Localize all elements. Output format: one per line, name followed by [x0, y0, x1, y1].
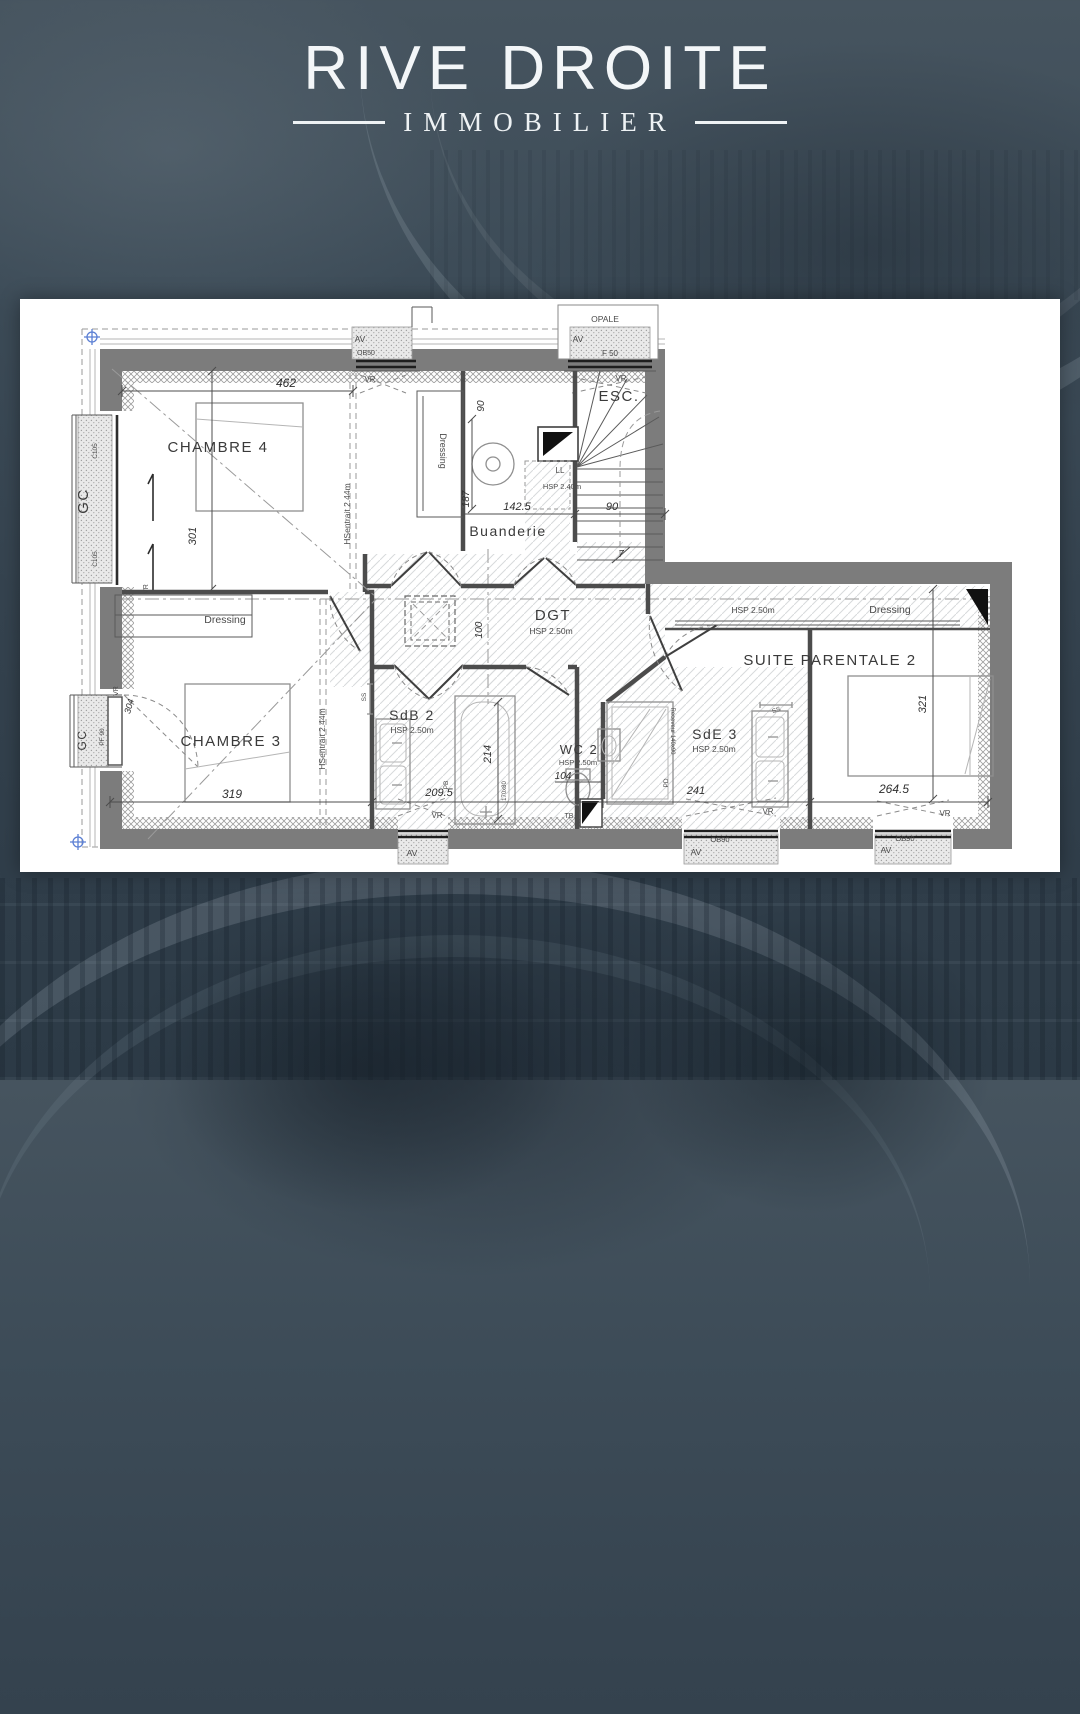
- note-hsp240: HSP 2.40m: [543, 482, 581, 491]
- tag-vr-esc: VR: [615, 374, 626, 383]
- tag-ll: LL: [556, 466, 565, 475]
- tag-tb: TB: [565, 813, 574, 820]
- label-dressing-suite: Dressing: [869, 604, 911, 616]
- room-chambre3: CHAMBRE 3: [180, 733, 281, 750]
- tag-vr-pf90: VR: [113, 686, 120, 696]
- dim-7: 7: [618, 549, 624, 560]
- tag-ob90-a: OB90: [710, 835, 729, 844]
- tag-gc-bay: GC: [75, 488, 92, 514]
- dim-90-esc: 90: [606, 501, 619, 513]
- dim-214: 214: [482, 745, 494, 764]
- dim-304: 304: [122, 698, 136, 715]
- tag-av-b3: AV: [881, 845, 892, 855]
- agency-logo: RIVE DROITE IMMOBILIER: [0, 36, 1080, 138]
- tag-vr-left: VR: [143, 584, 150, 594]
- note-hsp-sdb2: HSP 2.50m: [390, 725, 433, 735]
- dim-90-buanderie: 90: [476, 400, 487, 412]
- building-railing: [430, 150, 1080, 300]
- room-suite: SUITE PARENTALE 2: [743, 652, 916, 669]
- logo-subtitle-row: IMMOBILIER: [0, 107, 1080, 138]
- logo-subtitle: IMMOBILIER: [403, 107, 677, 138]
- room-dgt: DGT: [535, 607, 571, 624]
- tag-av-topleft: AV: [355, 334, 366, 344]
- dim-264-5: 264.5: [878, 782, 909, 796]
- tag-vr-b3: VR: [939, 809, 950, 818]
- shadow-haze: [120, 860, 820, 1280]
- tag-c105-a: C105: [92, 443, 99, 459]
- tag-ss-sdb2: SS: [361, 692, 368, 701]
- tag-tub-size: 170x80: [502, 780, 508, 800]
- tag-c105-b: C105: [92, 551, 99, 567]
- note-hsentrait-ch3: HSentrait 2.44m: [317, 708, 327, 769]
- plan-panel: CHAMBRE 4 462 301 HSentrait 2.44m Dressi…: [20, 299, 1060, 872]
- note-hsp-dgt: HSP 2.50m: [529, 626, 572, 636]
- room-sdb2: SdB 2: [389, 707, 435, 723]
- note-hsp-dressing: HSP 2.50m: [731, 605, 774, 615]
- tag-vr-b2: VR: [762, 807, 773, 816]
- tag-av-b1: AV: [407, 848, 418, 858]
- tag-ob90-b: OB90: [895, 834, 914, 843]
- label-dressing-ch3: Dressing: [204, 614, 246, 626]
- note-hsp-sde3: HSP 2.50m: [692, 744, 735, 754]
- tag-f50: F 50: [602, 349, 619, 358]
- logo-title: RIVE DROITE: [0, 36, 1080, 101]
- dim-319: 319: [222, 787, 242, 801]
- dim-321: 321: [917, 695, 929, 713]
- tag-vr-b1: VR: [431, 811, 442, 820]
- label-dressing-top: Dressing: [438, 433, 448, 469]
- tag-gc-pf90: GC: [75, 730, 89, 751]
- tag-receveur: Receveur 140x90: [669, 707, 675, 755]
- floor-plan: CHAMBRE 4 462 301 HSentrait 2.44m Dressi…: [20, 299, 1060, 872]
- room-esc: ESC.: [598, 388, 639, 405]
- dim-301: 301: [187, 527, 199, 545]
- logo-rule-right: [695, 121, 787, 124]
- note-hsp-wc2: HSP 2.50m: [559, 758, 597, 767]
- tag-pd: PD: [663, 778, 670, 787]
- room-sde3: SdE 3: [692, 726, 738, 742]
- tag-av-f50: AV: [573, 334, 584, 344]
- room-wc2: WC 2: [560, 742, 599, 757]
- tag-pf90: PF 90: [99, 728, 106, 746]
- dim-142-5: 142.5: [503, 501, 531, 513]
- tag-opale: OPALE: [591, 314, 619, 324]
- dim-187: 187: [461, 490, 472, 507]
- dim-241: 241: [686, 785, 705, 797]
- dim-462: 462: [276, 376, 296, 390]
- room-chambre4: CHAMBRE 4: [167, 439, 268, 456]
- logo-rule-left: [293, 121, 385, 124]
- note-hsentrait-ch4: HSentrait 2.44m: [342, 483, 352, 544]
- tag-ob50-top: OB50: [357, 350, 375, 357]
- dim-209-5: 209.5: [424, 787, 453, 799]
- tag-vr-topleft: VR: [364, 375, 375, 384]
- tag-av-b2: AV: [691, 847, 702, 857]
- dim-100: 100: [474, 621, 485, 638]
- dim-104: 104: [555, 771, 572, 782]
- room-buanderie: Buanderie: [469, 523, 546, 539]
- social-post: { "logo": { "title": "RIVE DROITE", "sub…: [0, 0, 1080, 1080]
